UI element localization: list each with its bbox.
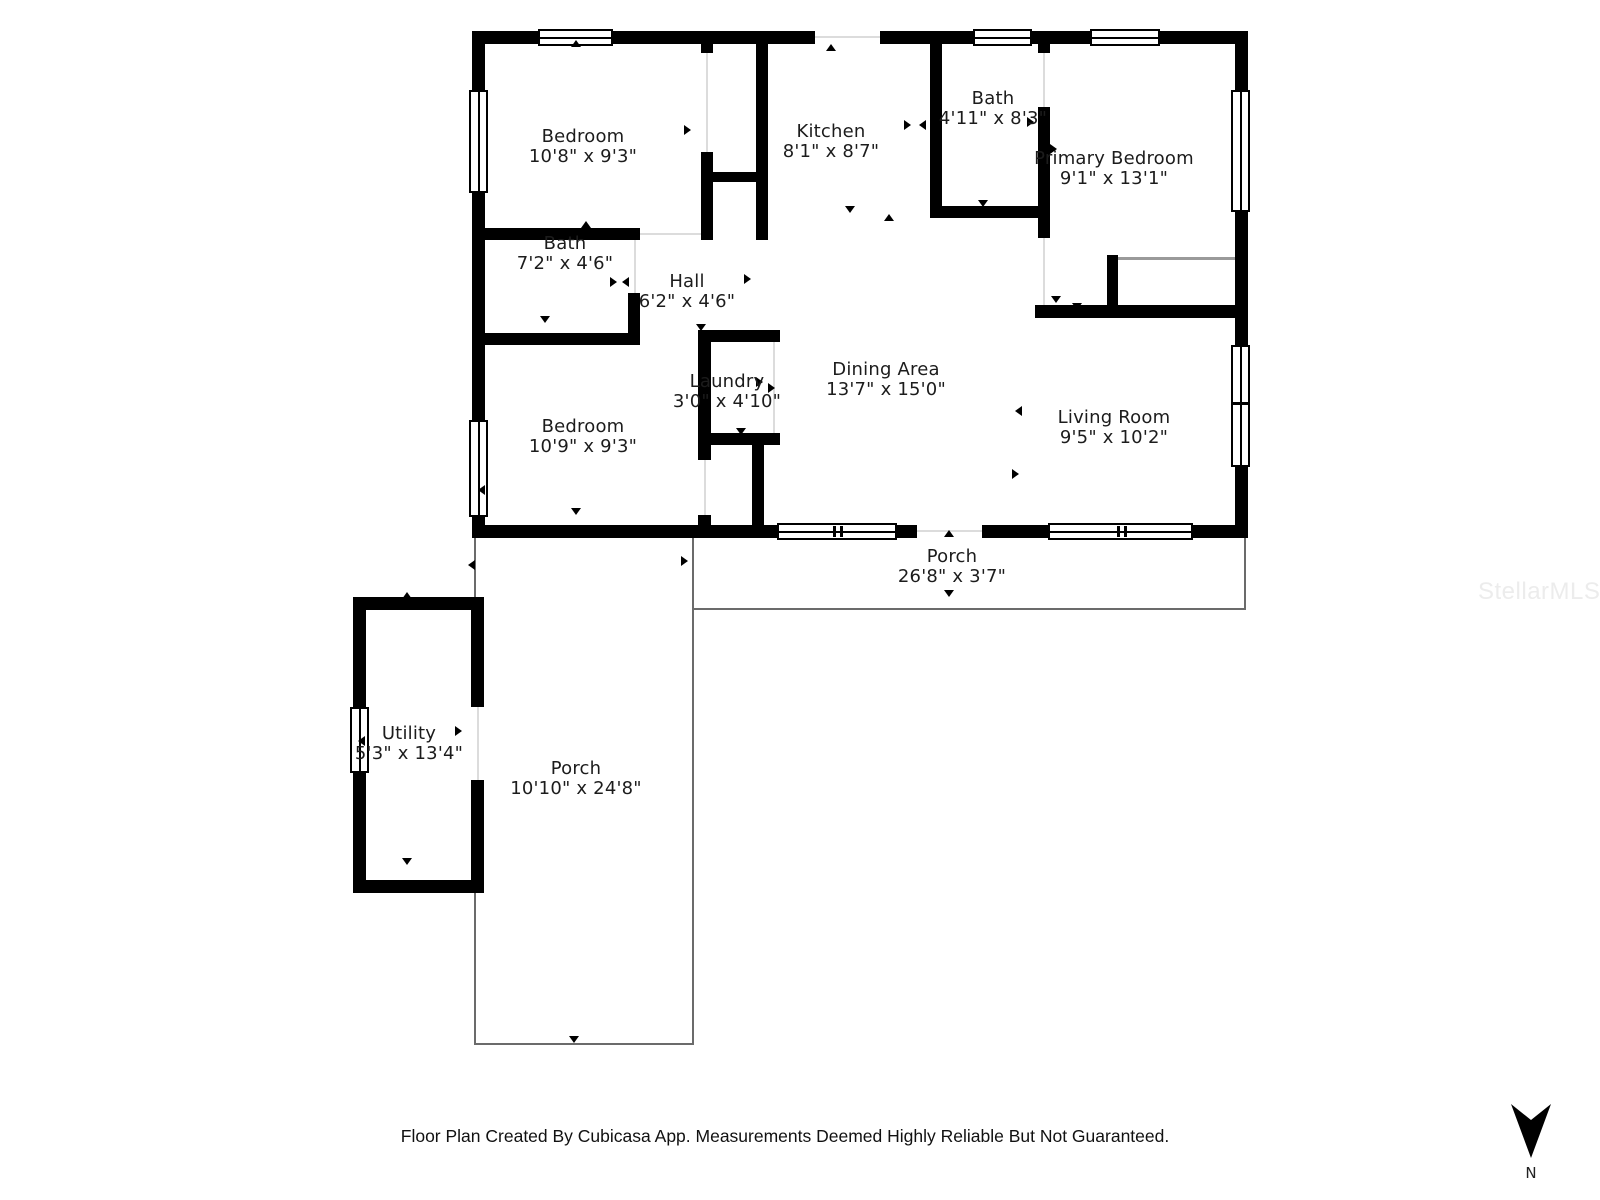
room-label-porch-rear: Porch 26'8" x 3'7" (898, 547, 1006, 586)
room-label-hall: Hall 6'2" x 4'6" (639, 272, 736, 311)
room-name: Living Room (1058, 408, 1171, 428)
door-arrow-icon (581, 221, 591, 228)
room-dims: 7'2" x 4'6" (517, 254, 614, 274)
wall-segment (353, 880, 484, 893)
wall-segment (897, 525, 917, 538)
door-arrow-icon (744, 274, 751, 284)
wall-segment (353, 597, 484, 610)
wall-segment (701, 41, 713, 53)
door-arrow-icon (1072, 303, 1082, 310)
door-arrow-icon (1015, 406, 1022, 416)
door-arrow-icon (402, 858, 412, 865)
window-marker (469, 90, 488, 193)
room-name: Bedroom (529, 417, 637, 437)
door-arrow-icon (919, 120, 926, 130)
room-name: Porch (510, 759, 642, 779)
wall-segment (1035, 305, 1248, 318)
room-dims: 10'10" x 24'8" (510, 779, 642, 799)
room-label-bath-1: Bath 7'2" x 4'6" (517, 234, 614, 273)
door-arrow-icon (736, 428, 746, 435)
room-dims: 4'11" x 8'3" (939, 109, 1047, 129)
door-arrow-icon (978, 200, 988, 207)
wall-segment (701, 152, 713, 240)
window-marker (469, 420, 488, 517)
wall-segment (930, 206, 1047, 218)
room-label-living-room: Living Room 9'5" x 10'2" (1058, 408, 1171, 447)
door-threshold (1043, 238, 1045, 305)
room-name: Utility (355, 724, 463, 744)
north-label: N (1510, 1164, 1552, 1182)
window-mullion (1124, 526, 1127, 537)
floor-plan-canvas: Bedroom 10'8" x 9'3" Kitchen 8'1" x 8'7"… (0, 0, 1600, 1200)
room-name: Laundry (673, 372, 781, 392)
room-dims: 9'5" x 10'2" (1058, 428, 1171, 448)
door-arrow-icon (622, 277, 629, 287)
room-label-primary-bedroom: Primary Bedroom 9'1" x 13'1" (1034, 149, 1194, 188)
window-marker (1090, 29, 1160, 46)
window-mullion (1233, 402, 1248, 405)
room-label-utility: Utility 5'3" x 13'4" (355, 724, 463, 763)
door-arrow-icon (402, 592, 412, 599)
room-label-porch-side: Porch 10'10" x 24'8" (510, 759, 642, 798)
door-threshold (640, 233, 701, 235)
wall-segment (1235, 31, 1248, 90)
window-mullion (1117, 526, 1120, 537)
wall-segment (880, 31, 973, 44)
closet-shelf-line (1118, 257, 1235, 260)
door-arrow-icon (944, 590, 954, 597)
window-marker (1231, 345, 1250, 467)
door-arrow-icon (540, 316, 550, 323)
room-name: Hall (639, 272, 736, 292)
porch-outline (474, 893, 476, 1045)
door-arrow-icon (569, 1036, 579, 1043)
porch-outline (474, 1043, 694, 1045)
wall-segment (1235, 212, 1248, 345)
wall-segment (713, 172, 756, 182)
door-arrow-icon (944, 530, 954, 537)
room-dims: 3'0" x 4'10" (673, 392, 781, 412)
door-threshold (706, 53, 708, 152)
window-marker (973, 29, 1032, 46)
disclaimer-text: Floor Plan Created By Cubicasa App. Meas… (0, 1126, 1570, 1147)
porch-outline (1244, 538, 1246, 610)
door-arrow-icon (468, 560, 475, 570)
room-name: Kitchen (783, 122, 880, 142)
window-mullion (840, 526, 843, 537)
room-name: Primary Bedroom (1034, 149, 1194, 169)
wall-segment (1107, 255, 1118, 305)
door-arrow-icon (1051, 296, 1061, 303)
room-label-laundry: Laundry 3'0" x 4'10" (673, 372, 781, 411)
door-threshold (704, 460, 706, 515)
wall-segment (613, 31, 815, 44)
door-arrow-icon (610, 277, 617, 287)
wall-segment (982, 525, 1048, 538)
room-name: Porch (898, 547, 1006, 567)
door-arrow-icon (826, 44, 836, 51)
room-dims: 8'1" x 8'7" (783, 142, 880, 162)
wall-segment (698, 515, 711, 525)
room-dims: 10'9" x 9'3" (529, 437, 637, 457)
window-mullion (833, 526, 836, 537)
window-marker (1048, 523, 1193, 540)
stellar-mls-watermark: StellarMLS (1478, 578, 1600, 606)
door-arrow-icon (684, 125, 691, 135)
room-label-dining-area: Dining Area 13'7" x 15'0" (826, 360, 946, 399)
wall-segment (471, 597, 484, 707)
window-marker (777, 523, 897, 540)
door-threshold (634, 240, 636, 293)
door-arrow-icon (1012, 469, 1019, 479)
door-arrow-icon (884, 214, 894, 221)
door-arrow-icon (571, 508, 581, 515)
door-threshold (477, 707, 479, 780)
room-dims: 26'8" x 3'7" (898, 567, 1006, 587)
room-name: Bath (517, 234, 614, 254)
room-dims: 5'3" x 13'4" (355, 744, 463, 764)
room-dims: 6'2" x 4'6" (639, 292, 736, 312)
wall-segment (353, 597, 366, 707)
door-arrow-icon (845, 206, 855, 213)
room-name: Dining Area (826, 360, 946, 380)
wall-segment (1038, 41, 1050, 53)
door-arrow-icon (478, 485, 485, 495)
wall-segment (752, 445, 764, 525)
wall-segment (756, 41, 768, 240)
room-dims: 9'1" x 13'1" (1034, 169, 1194, 189)
door-arrow-icon (681, 556, 688, 566)
room-name: Bath (939, 89, 1047, 109)
wall-segment (472, 333, 640, 345)
room-label-kitchen: Kitchen 8'1" x 8'7" (783, 122, 880, 161)
door-arrow-icon (904, 120, 911, 130)
door-arrow-icon (571, 40, 581, 47)
wall-segment (698, 445, 711, 460)
door-arrow-icon (475, 278, 482, 288)
room-dims: 10'8" x 9'3" (529, 147, 637, 167)
door-threshold (815, 36, 880, 38)
room-dims: 13'7" x 15'0" (826, 380, 946, 400)
wall-segment (353, 773, 366, 893)
wall-segment (471, 780, 484, 893)
wall-segment (472, 525, 777, 538)
room-name: Bedroom (529, 127, 637, 147)
porch-outline (692, 538, 694, 1045)
room-label-bedroom-2: Bedroom 10'9" x 9'3" (529, 417, 637, 456)
room-label-bath-2: Bath 4'11" x 8'3" (939, 89, 1047, 128)
window-marker (1231, 90, 1250, 212)
porch-outline (692, 608, 1246, 610)
room-label-bedroom-1: Bedroom 10'8" x 9'3" (529, 127, 637, 166)
door-arrow-icon (696, 324, 706, 331)
wall-segment (1193, 525, 1248, 538)
wall-segment (472, 31, 485, 90)
